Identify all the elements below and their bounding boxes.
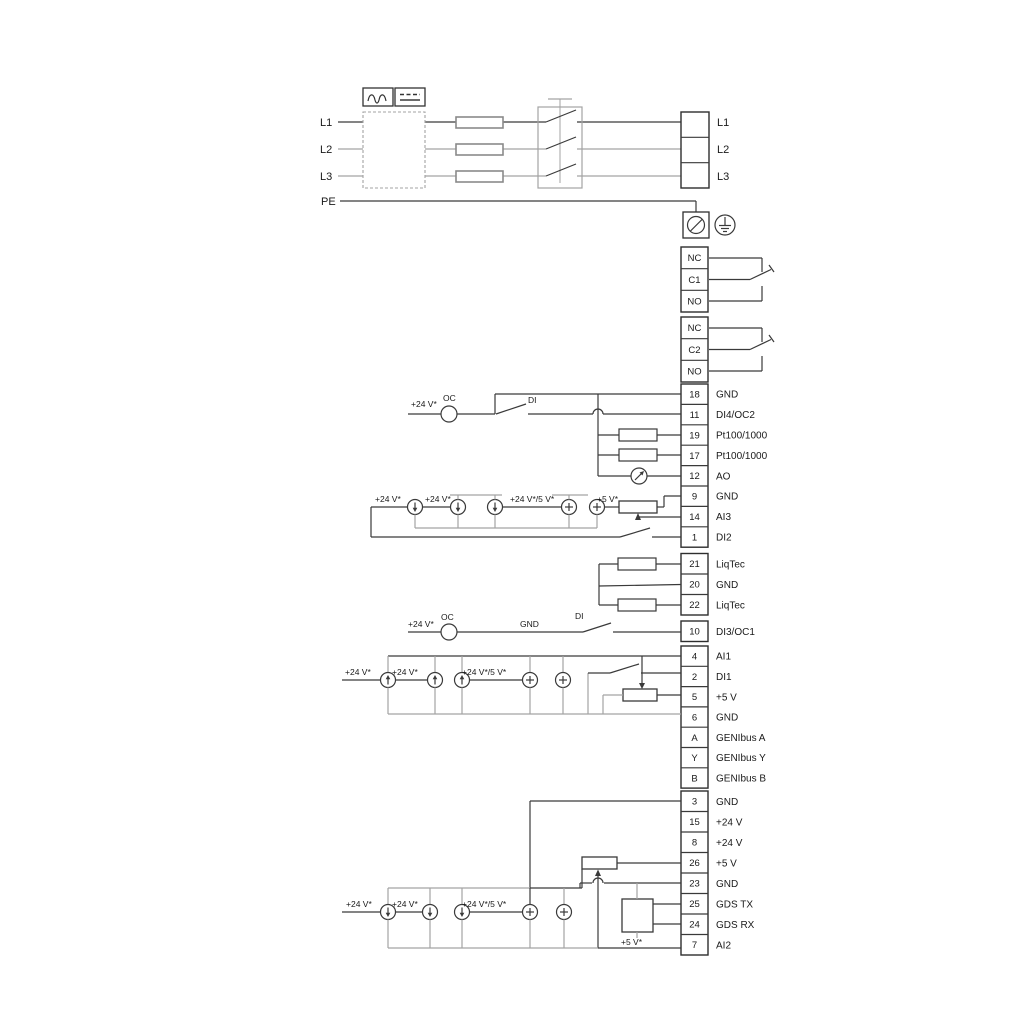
earth-icon	[715, 215, 735, 235]
terminal-label: L1	[717, 117, 729, 129]
gds-module-box	[622, 899, 653, 932]
terminal-number: 9	[692, 492, 697, 503]
current-source-icon	[488, 500, 503, 515]
terminal-label: AO	[716, 471, 731, 482]
terminal-number: 10	[689, 627, 700, 638]
annotation-label: +24 V*	[375, 494, 401, 504]
annotation-label: +24 V*/5 V*	[510, 494, 555, 504]
terminal-number: 5	[692, 692, 697, 703]
annotation-label: +24 V*/5 V*	[462, 899, 507, 909]
terminal-number: 24	[689, 920, 700, 931]
switch-blade	[546, 110, 576, 122]
terminal-label: +24 V	[716, 817, 743, 828]
terminal-number: 2	[692, 672, 697, 683]
terminal-number: C2	[688, 345, 700, 356]
terminal-block-di3: 10DI3/OC1	[681, 621, 755, 642]
terminal-number: 4	[692, 652, 697, 663]
annotation-label: DI	[528, 395, 537, 405]
oc-open-collector-icon	[441, 624, 457, 640]
annotation-label: +24 V*	[346, 899, 372, 909]
terminal-block-io-top: 18GND11DI4/OC219Pt100/100017Pt100/100012…	[681, 384, 768, 547]
terminal-number: NC	[688, 323, 702, 334]
annotation-label: +24 V*	[425, 494, 451, 504]
main-switch	[538, 99, 582, 188]
terminal-number: 3	[692, 797, 697, 808]
annotation-label: OC	[441, 612, 454, 622]
terminal-label: GENIbus A	[716, 733, 766, 744]
oc-open-collector-icon	[441, 406, 457, 422]
mains-terminal-block: L1L2L3	[681, 112, 729, 188]
terminal-label: GND	[716, 390, 738, 401]
annotation-label: +5 V*	[597, 494, 619, 504]
annotation-label: +24 V*	[411, 399, 437, 409]
current-source-icon	[423, 905, 438, 920]
terminal-number: 14	[689, 512, 700, 523]
terminal-number: C1	[688, 275, 700, 286]
wire	[769, 335, 774, 342]
wire	[769, 265, 774, 272]
current-source-icon	[408, 500, 423, 515]
terminal-number: B	[691, 773, 697, 784]
phase-label: L3	[320, 171, 332, 183]
terminal-number: 23	[689, 879, 700, 890]
pump-wiring-diagram: L1L2L3PEL1L2L3NCC1NONCC2NO18GND11DI4/OC2…	[0, 0, 1024, 1024]
resistor-symbol	[619, 429, 657, 441]
terminal-label: AI1	[716, 652, 731, 663]
terminal-number: 6	[692, 712, 697, 723]
circuit-io-mid	[342, 656, 681, 714]
terminal-number: A	[691, 733, 698, 744]
rcd-dashed-box	[363, 112, 425, 188]
terminal-number: NO	[687, 297, 701, 308]
terminal-label: +5 V	[716, 858, 737, 869]
terminal-number: NC	[688, 253, 702, 264]
circuit-liqtec	[599, 558, 681, 611]
terminal-label: AI2	[716, 940, 731, 951]
terminal-number: 25	[689, 899, 700, 910]
terminal-label: GND	[716, 580, 738, 591]
pe-terminal	[683, 212, 709, 238]
switch-blade	[496, 404, 526, 414]
switch-blade	[610, 664, 639, 673]
resistor-symbol	[618, 558, 656, 570]
annotation-label: +24 V*/5 V*	[462, 667, 507, 677]
switch-blade	[546, 164, 576, 176]
terminal-label: GND	[716, 713, 738, 724]
potentiometer-symbol	[619, 501, 657, 513]
voltage-source-icon	[523, 673, 538, 688]
annotation-label: +5 V*	[621, 937, 643, 947]
fuse-symbol	[456, 117, 503, 128]
terminal-label: +24 V	[716, 838, 743, 849]
annotation-label: +24 V*	[345, 667, 371, 677]
terminal-label: L3	[717, 171, 729, 183]
relay-contact-block-1: NCC1NO	[681, 247, 774, 312]
voltage-source-icon	[557, 905, 572, 920]
terminal-number: 7	[692, 940, 697, 951]
pot-wiper-arrow	[639, 683, 645, 689]
circuit-io-bottom	[342, 801, 681, 948]
wire	[599, 585, 681, 587]
terminal-number: 1	[692, 532, 697, 543]
terminal-label: +5 V	[716, 692, 737, 703]
ac-wave-icon	[363, 88, 393, 106]
switch-blade	[583, 623, 611, 632]
terminal-label: GDS TX	[716, 899, 753, 910]
terminal-label: LiqTec	[716, 600, 745, 611]
switch-blade	[750, 270, 771, 280]
terminal-number: 26	[689, 858, 700, 869]
relay-contact-block-2: NCC2NO	[681, 317, 774, 382]
terminal-number: 17	[689, 451, 700, 462]
terminal-label: GND	[716, 797, 738, 808]
annotation-label: DI	[575, 611, 584, 621]
terminal-label: Pt100/1000	[716, 451, 768, 462]
terminal-label: LiqTec	[716, 559, 745, 570]
annotation-label: +24 V*	[408, 619, 434, 629]
terminal-label: DI3/OC1	[716, 627, 755, 638]
dc-dashed-icon	[395, 88, 425, 106]
terminal-label: AI3	[716, 512, 731, 523]
voltage-source-icon	[523, 905, 538, 920]
symbol-box	[363, 88, 393, 106]
terminal-number: 18	[689, 390, 700, 401]
pe-label: PE	[321, 196, 336, 208]
switch-blade	[620, 528, 650, 537]
terminal-label: DI4/OC2	[716, 410, 755, 421]
symbol-box	[395, 88, 425, 106]
pot-wiper-arrow	[595, 870, 601, 877]
voltage-source-icon	[556, 673, 571, 688]
switch-blade	[750, 340, 771, 350]
terminal-number: 20	[689, 580, 700, 591]
switch-blade	[546, 137, 576, 149]
terminal-number: 12	[689, 471, 700, 482]
terminal-label: GDS RX	[716, 920, 755, 931]
terminal-block-outline	[681, 112, 709, 188]
resistor-symbol	[619, 449, 657, 461]
terminal-number: Y	[691, 753, 698, 764]
fuse-symbol	[456, 144, 503, 155]
potentiometer-symbol	[582, 857, 617, 869]
terminal-number: 19	[689, 430, 700, 441]
potentiometer-symbol	[623, 689, 657, 701]
annotation-label: OC	[443, 393, 456, 403]
annotation-label: +24 V*	[392, 899, 418, 909]
terminal-number: 22	[689, 600, 700, 611]
terminal-label: L2	[717, 144, 729, 156]
current-source-icon	[451, 500, 466, 515]
current-source-icon	[428, 673, 443, 688]
terminal-label: DI2	[716, 533, 732, 544]
fuse-symbol	[456, 171, 503, 182]
terminal-number: 11	[690, 410, 700, 421]
terminal-block-liqtec: 21LiqTec20GND22LiqTec	[681, 554, 745, 616]
annotation-label: +24 V*	[392, 667, 418, 677]
terminal-block-io-bottom: 3GND15+24 V8+24 V26+5 V23GND25GDS TX24GD…	[681, 791, 755, 955]
terminal-number: NO	[687, 367, 701, 378]
terminal-label: GND	[716, 492, 738, 503]
terminal-label: DI1	[716, 672, 732, 683]
terminal-block-io-mid: 4AI12DI15+5 V6GNDAGENIbus AYGENIbus YBGE…	[681, 646, 766, 788]
voltage-source-icon	[562, 500, 577, 515]
analog-output-meter-icon	[631, 468, 647, 484]
terminal-label: GENIbus B	[716, 773, 766, 784]
circuit-io-top	[371, 394, 681, 537]
phase-label: L1	[320, 117, 332, 129]
wiring-diagram-page: L1L2L3PEL1L2L3NCC1NONCC2NO18GND11DI4/OC2…	[0, 0, 1024, 1024]
terminal-label: GND	[716, 879, 738, 890]
power-section: L1L2L3PEL1L2L3	[320, 88, 735, 238]
terminal-label: GENIbus Y	[716, 753, 766, 764]
terminal-number: 21	[689, 559, 700, 570]
terminal-number: 8	[692, 838, 697, 849]
resistor-symbol	[618, 599, 656, 611]
phase-label: L2	[320, 144, 332, 156]
terminal-number: 15	[689, 817, 700, 828]
annotation-label: GND	[520, 619, 539, 629]
circuit-di3	[408, 623, 681, 640]
terminal-label: Pt100/1000	[716, 431, 768, 442]
